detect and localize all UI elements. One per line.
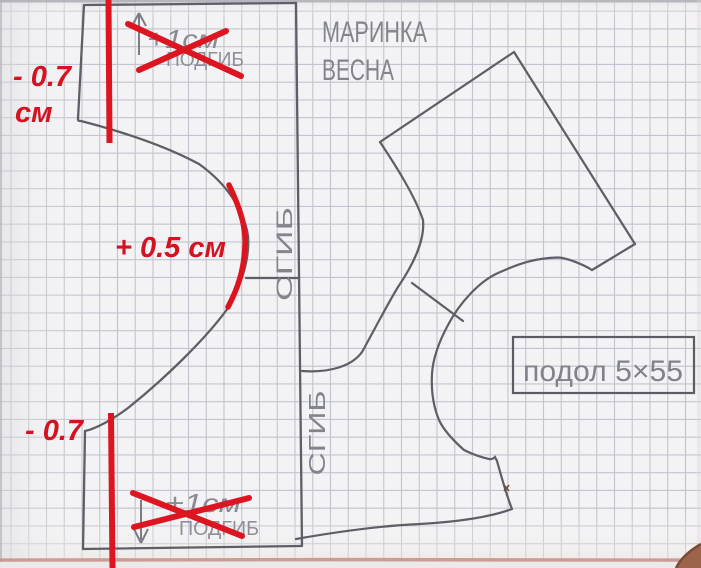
svg-text:ВЕСНА: ВЕСНА bbox=[322, 54, 394, 87]
svg-text:- 0.7: - 0.7 bbox=[13, 61, 73, 93]
svg-text:подол 5×55: подол 5×55 bbox=[523, 355, 683, 388]
svg-text:см: см bbox=[15, 97, 53, 129]
svg-text:СГИБ: СГИБ bbox=[272, 207, 297, 301]
svg-text:+ 0.5 см: + 0.5 см bbox=[115, 232, 226, 264]
svg-text:СГИБ: СГИБ bbox=[304, 391, 330, 476]
svg-text:МАРИНКА: МАРИНКА bbox=[322, 16, 427, 49]
svg-text:- 0.7: - 0.7 bbox=[25, 415, 85, 447]
